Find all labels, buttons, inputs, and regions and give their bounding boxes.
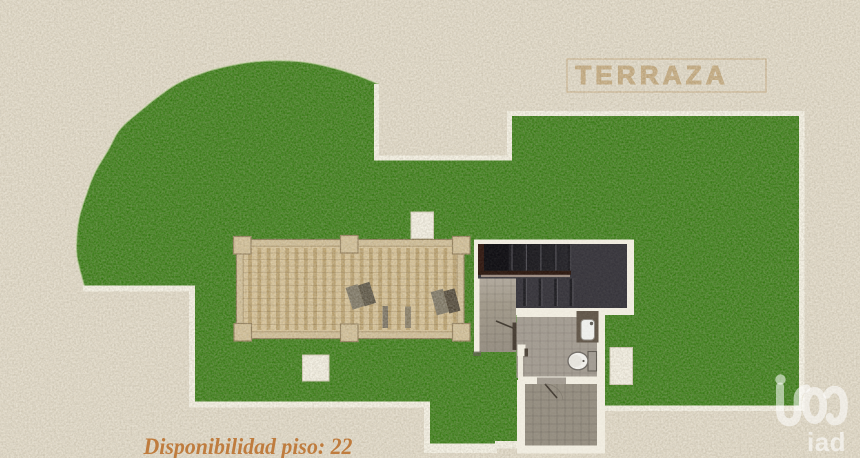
svg-text:Disponibilidad piso: 22: Disponibilidad piso: 22 [143,434,353,458]
svg-text:iad: iad [807,427,846,457]
